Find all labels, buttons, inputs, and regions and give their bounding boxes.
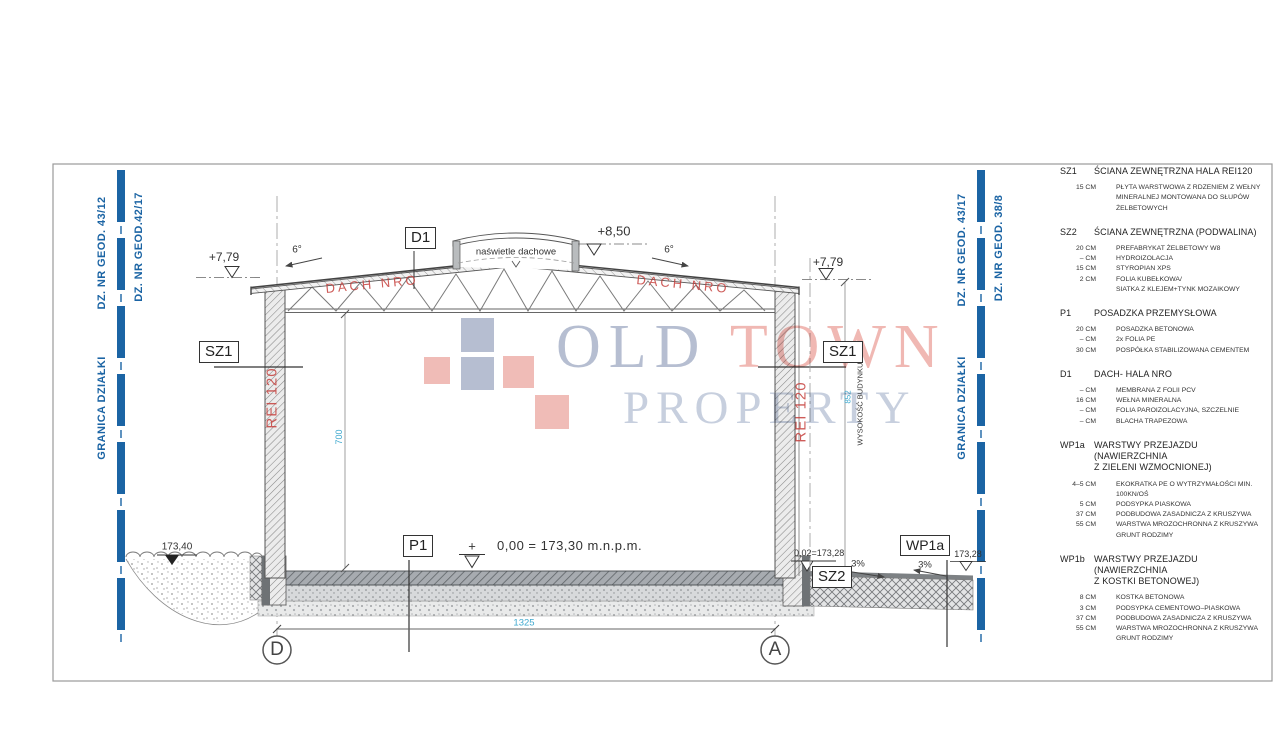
legend-layer-row: 5 CMPODSYPKA PIASKOWA — [1060, 500, 1272, 510]
legend-layer-desc: KOSTKA BETONOWA — [1116, 593, 1184, 603]
legend-layer-desc: WEŁNA MINERALNA — [1116, 396, 1181, 406]
legend-layer-thickness: 20 CM — [1060, 244, 1096, 254]
legend-section-id: WP1a — [1060, 440, 1094, 474]
dim-width-text: 1325 — [513, 618, 534, 629]
grid-bubble-d-label: D — [270, 639, 284, 661]
legend-layer-desc: EKOKRATKA PE O WYTRZYMAŁOŚCI MIN. 100KN/… — [1116, 480, 1272, 500]
legend-layer-row: 20 CMPREFABRYKAT ŻELBETOWY W8 — [1060, 244, 1272, 254]
legend-layer-row: 4–5 CMEKOKRATKA PE O WYTRZYMAŁOŚCI MIN. … — [1060, 480, 1272, 500]
boundary-left-granica-label: GRANICA DZIAŁKI — [96, 356, 108, 459]
legend-section-title: WARSTWY PRZEJAZDU (NAWIERZCHNIA Z KOSTKI… — [1094, 554, 1272, 588]
legend-layer-row: – CMBLACHA TRAPEZOWA — [1060, 417, 1272, 427]
boundary-left-parcel-b-label: DZ. NR GEOD.42/17 — [133, 192, 145, 302]
legend-layer-row: 37 CMPODBUDOWA ZASADNICZA Z KRUSZYWA — [1060, 510, 1272, 520]
legend-section-SZ1: SZ1ŚCIANA ZEWNĘTRZNA HALA REI12015 CMPŁY… — [1060, 166, 1272, 214]
level-eave-left — [196, 267, 263, 278]
floor-level-text: 0,00 = 173,30 m.n.p.m. — [497, 538, 642, 553]
eave-level-right-text: +7,79 — [813, 255, 843, 269]
legend-layer-desc: FOLIA KUBEŁKOWA/ SIATKA Z KLEJEM+TYNK MO… — [1116, 275, 1240, 295]
ridge-level-text: +8,50 — [598, 224, 631, 239]
boundary-right-granica-label: GRANICA DZIAŁKI — [956, 356, 968, 459]
roof-slope-right-text: 6° — [664, 245, 674, 256]
legend-layer-row: – CMHYDROIZOLACJA — [1060, 254, 1272, 264]
legend-section-P1: P1POSADZKA PRZEMYSŁOWA20 CMPOSADZKA BETO… — [1060, 308, 1272, 356]
legend-layer-row: 15 CMPŁYTA WARSTWOWA Z RDZENIEM Z WEŁNY … — [1060, 183, 1272, 214]
wall-left — [265, 290, 285, 578]
legend-layer-thickness: 37 CM — [1060, 614, 1096, 624]
boundary-right-parcel-b-label: DZ. NR GEOD. 38/8 — [993, 195, 1005, 301]
legend-layer-row: – CM2x FOLIA PE — [1060, 335, 1272, 345]
floor-level-plus: + — [468, 539, 476, 554]
legend-section-WP1a: WP1aWARSTWY PRZEJAZDU (NAWIERZCHNIA Z ZI… — [1060, 440, 1272, 541]
legend-layer-row: 8 CMKOSTKA BETONOWA — [1060, 593, 1272, 603]
legend-layer-desc: PREFABRYKAT ŻELBETOWY W8 — [1116, 244, 1220, 254]
legend-section-id: SZ1 — [1060, 166, 1094, 177]
dim-building-height-text: 852 — [844, 390, 853, 403]
legend-layer-row: 15 CMSTYROPIAN XPS — [1060, 264, 1272, 274]
tag-sz1-left: SZ1 — [199, 341, 239, 363]
legend-layer-thickness: 55 CM — [1060, 520, 1096, 540]
floor-slab — [258, 571, 814, 616]
grid-bubble-a-label: A — [769, 639, 782, 661]
legend-section-id: D1 — [1060, 369, 1094, 380]
tag-d1: D1 — [405, 227, 436, 249]
legend-layer-thickness: 30 CM — [1060, 346, 1096, 356]
legend-layer-row: – CMMEMBRANA Z FOLII PCV — [1060, 386, 1272, 396]
drive-slope-2-text: 3% — [918, 560, 932, 571]
legend-layer-thickness: 3 CM — [1060, 604, 1096, 614]
legend-section-title: ŚCIANA ZEWNĘTRZNA HALA REI120 — [1094, 166, 1252, 177]
level-ridge — [578, 244, 650, 255]
legend-layer-row: 16 CMWEŁNA MINERALNA — [1060, 396, 1272, 406]
drive-slope-1-text: 3% — [851, 559, 865, 570]
tag-sz1-right: SZ1 — [823, 341, 863, 363]
legend-layer-thickness: 15 CM — [1060, 264, 1096, 274]
tag-p1: P1 — [403, 535, 433, 557]
dim-building-height-line — [810, 258, 849, 576]
legend-layer-desc: POSADZKA BETONOWA — [1116, 325, 1194, 335]
tag-wp1a: WP1a — [900, 535, 950, 556]
tag-sz2: SZ2 — [812, 566, 852, 588]
legend-layer-desc: STYROPIAN XPS — [1116, 264, 1171, 274]
wall-fire-rating-left: REI 120 — [264, 367, 281, 428]
legend-section-D1: D1DACH- HALA NRO– CMMEMBRANA Z FOLII PCV… — [1060, 369, 1272, 427]
legend-layer-thickness: 8 CM — [1060, 593, 1096, 603]
legend-layer-desc: PODSYPKA PIASKOWA — [1116, 500, 1191, 510]
wall-fire-rating-right: REI 120 — [793, 381, 810, 442]
legend-layer-row: 55 CMWARSTWA MROZOCHRONNA Z KRUSZYWA GRU… — [1060, 520, 1272, 540]
truss-bottom-chord — [285, 309, 775, 313]
legend-section-SZ2: SZ2ŚCIANA ZEWNĘTRZNA (PODWALINA)20 CMPRE… — [1060, 227, 1272, 295]
legend-layer-thickness: – CM — [1060, 406, 1096, 416]
legend-layer-row: 30 CMPOSPÓŁKA STABILIZOWANA CEMENTEM — [1060, 346, 1272, 356]
dim-building-height-label: WYSOKOŚĆ BUDYNKU — [856, 363, 865, 446]
legend-layer-desc: POSPÓŁKA STABILIZOWANA CEMENTEM — [1116, 346, 1249, 356]
legend-layer-desc: PŁYTA WARSTWOWA Z RDZENIEM Z WEŁNY MINER… — [1116, 183, 1260, 214]
legend-layer-thickness: 16 CM — [1060, 396, 1096, 406]
legend-panel: SZ1ŚCIANA ZEWNĘTRZNA HALA REI12015 CMPŁY… — [1060, 166, 1272, 657]
legend-section-id: SZ2 — [1060, 227, 1094, 238]
boundary-left-parcel-a-label: DZ. NR GEOD. 43/12 — [96, 197, 108, 310]
roof-slope-left-text: 6° — [292, 245, 302, 256]
legend-layer-thickness: 20 CM — [1060, 325, 1096, 335]
legend-layer-desc: WARSTWA MROZOCHRONNA Z KRUSZYWA GRUNT RO… — [1116, 520, 1258, 540]
legend-section-title: POSADZKA PRZEMYSŁOWA — [1094, 308, 1217, 319]
legend-layer-desc: BLACHA TRAPEZOWA — [1116, 417, 1187, 427]
legend-layer-desc: FOLIA PAROIZOLACYJNA, SZCZELNIE — [1116, 406, 1239, 416]
grade-left-text: 173,40 — [162, 542, 193, 553]
legend-layer-desc: PODSYPKA CEMENTOWO–PIASKOWA — [1116, 604, 1240, 614]
legend-sections: SZ1ŚCIANA ZEWNĘTRZNA HALA REI12015 CMPŁY… — [1060, 166, 1272, 644]
legend-layer-thickness: 15 CM — [1060, 183, 1096, 214]
terrain-left — [126, 552, 262, 625]
legend-layer-row: – CMFOLIA PAROIZOLACYJNA, SZCZELNIE — [1060, 406, 1272, 416]
legend-layer-thickness: 2 CM — [1060, 275, 1096, 295]
skylight-label: naświetle dachowe — [476, 247, 556, 258]
legend-layer-thickness: – CM — [1060, 254, 1096, 264]
legend-section-WP1b: WP1bWARSTWY PRZEJAZDU (NAWIERZCHNIA Z KO… — [1060, 554, 1272, 645]
legend-layer-thickness: – CM — [1060, 386, 1096, 396]
legend-layer-thickness: 5 CM — [1060, 500, 1096, 510]
dim-clear-height-text: 700 — [334, 429, 344, 444]
legend-layer-desc: 2x FOLIA PE — [1116, 335, 1155, 345]
legend-section-title: DACH- HALA NRO — [1094, 369, 1172, 380]
grade-right-wall-text: 0,02=173,28 — [794, 548, 844, 558]
legend-section-id: WP1b — [1060, 554, 1094, 588]
legend-layer-desc: WARSTWA MROZOCHRONNA Z KRUSZYWA GRUNT RO… — [1116, 624, 1258, 644]
boundary-right-parcel-a-label: DZ. NR GEOD. 43/17 — [956, 194, 968, 307]
legend-layer-thickness: – CM — [1060, 335, 1096, 345]
legend-layer-desc: PODBUDOWA ZASADNICZA Z KRUSZYWA — [1116, 614, 1251, 624]
grade-right-edge-text: 173,28 — [954, 549, 982, 559]
eave-level-left-text: +7,79 — [209, 250, 239, 264]
legend-layer-desc: PODBUDOWA ZASADNICZA Z KRUSZYWA — [1116, 510, 1251, 520]
legend-layer-row: 37 CMPODBUDOWA ZASADNICZA Z KRUSZYWA — [1060, 614, 1272, 624]
legend-layer-row: 20 CMPOSADZKA BETONOWA — [1060, 325, 1272, 335]
legend-section-id: P1 — [1060, 308, 1094, 319]
roof-slope-arrow-left — [286, 258, 322, 266]
legend-layer-row: 3 CMPODSYPKA CEMENTOWO–PIASKOWA — [1060, 604, 1272, 614]
roof-slope-arrow-right — [652, 258, 688, 266]
legend-section-title: ŚCIANA ZEWNĘTRZNA (PODWALINA) — [1094, 227, 1257, 238]
legend-layer-desc: HYDROIZOLACJA — [1116, 254, 1173, 264]
legend-layer-thickness: 55 CM — [1060, 624, 1096, 644]
legend-layer-thickness: 4–5 CM — [1060, 480, 1096, 500]
legend-layer-thickness: – CM — [1060, 417, 1096, 427]
legend-layer-row: 2 CMFOLIA KUBEŁKOWA/ SIATKA Z KLEJEM+TYN… — [1060, 275, 1272, 295]
legend-section-title: WARSTWY PRZEJAZDU (NAWIERZCHNIA Z ZIELEN… — [1094, 440, 1272, 474]
drawing-sheet: OLD TOWN PROPERTY GRANICA DZIAŁKI DZ. NR… — [0, 0, 1280, 753]
legend-layer-row: 55 CMWARSTWA MROZOCHRONNA Z KRUSZYWA GRU… — [1060, 624, 1272, 644]
legend-layer-desc: MEMBRANA Z FOLII PCV — [1116, 386, 1196, 396]
level-floor — [459, 555, 485, 568]
level-eave-right — [802, 269, 872, 280]
legend-layer-thickness: 37 CM — [1060, 510, 1096, 520]
